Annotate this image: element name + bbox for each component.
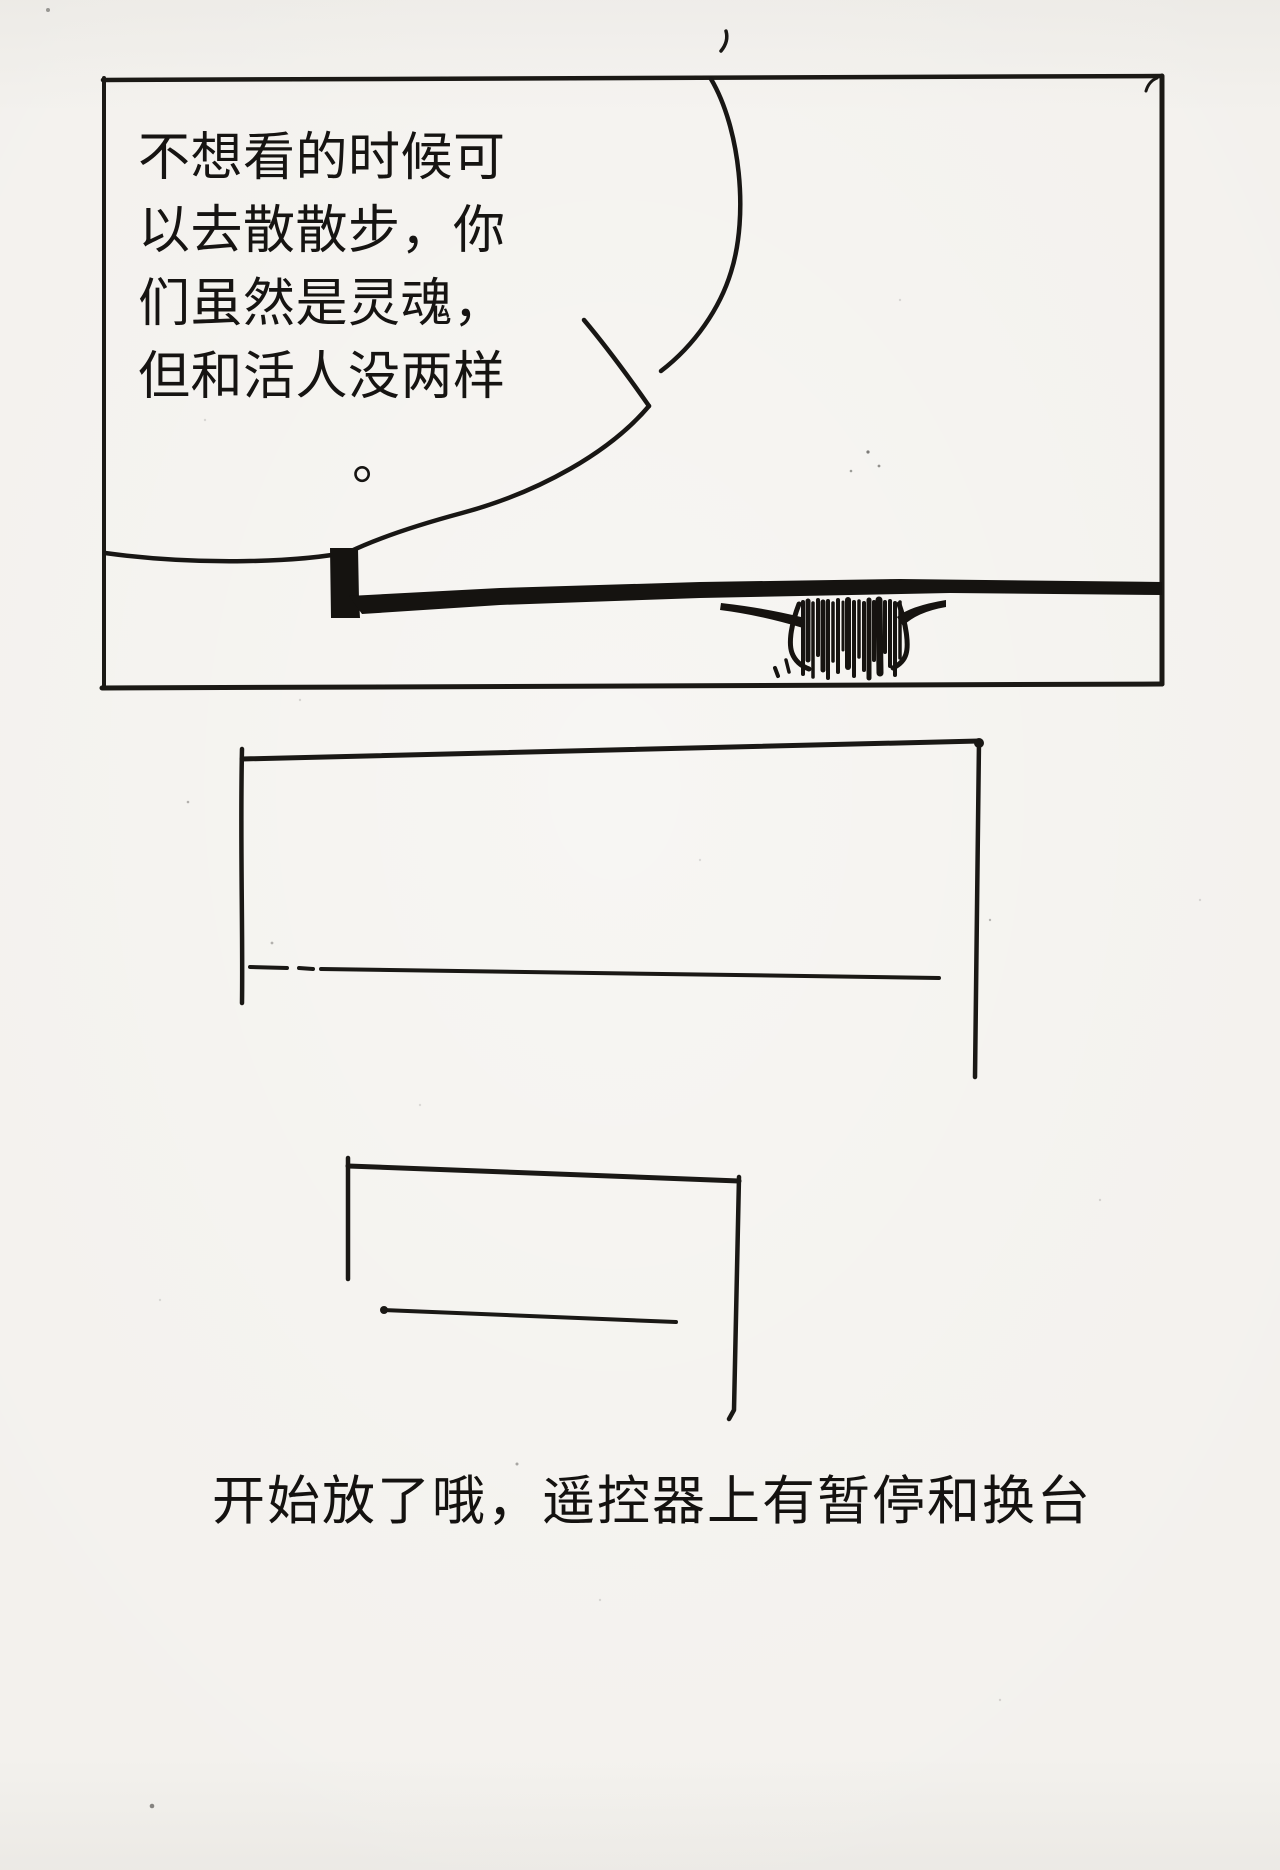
speech-bubble-period: 。 bbox=[352, 436, 404, 488]
tv-corner-bar bbox=[330, 548, 360, 618]
speech-bubble-text: 不想看的时候可 以去散散步，你 们虽然是灵魂， 但和活人没两样 bbox=[138, 122, 558, 414]
comic-page: 不想看的时候可 以去散散步，你 们虽然是灵魂， 但和活人没两样 。 开始放了哦，… bbox=[0, 0, 1280, 1870]
caption-text: 开始放了哦，遥控器上有暂停和换台 bbox=[212, 1472, 1092, 1532]
tv-stand-hatched bbox=[720, 600, 946, 678]
sketch-remote-control bbox=[348, 1158, 739, 1419]
sketch-tv-screen bbox=[241, 738, 984, 1077]
